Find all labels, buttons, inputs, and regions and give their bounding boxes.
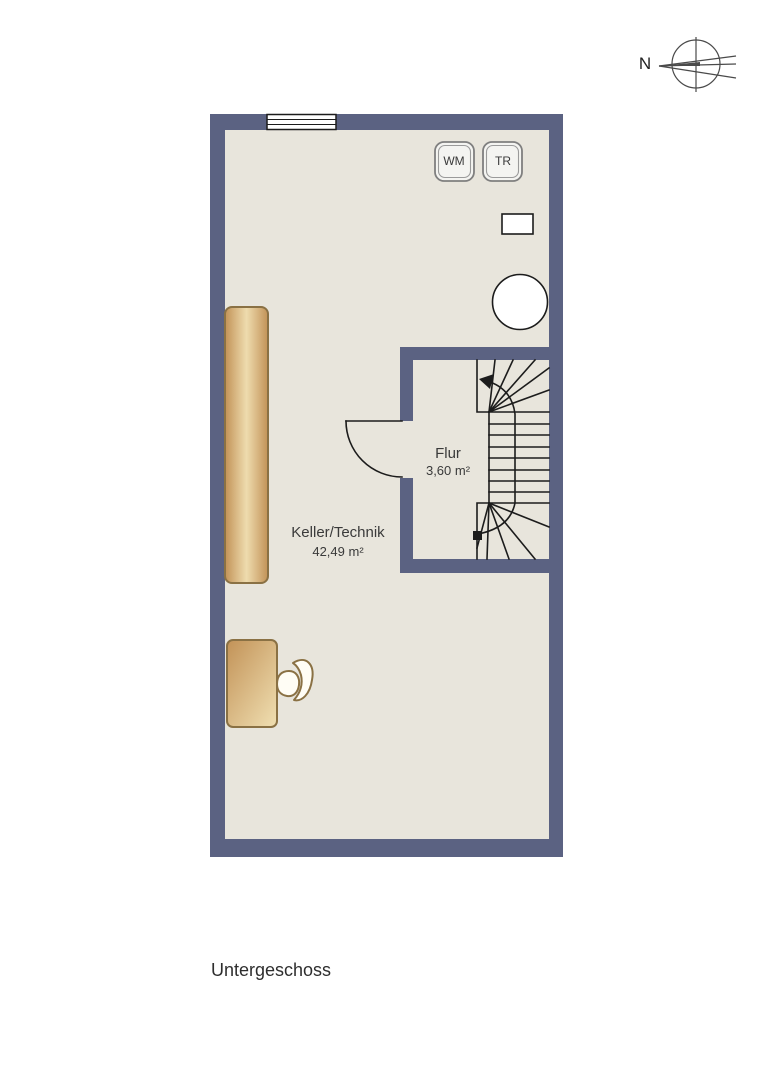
desk bbox=[227, 640, 277, 727]
stairs-walk-start-dot bbox=[473, 531, 482, 540]
small-box-symbol bbox=[502, 214, 533, 234]
compass-north-label: N bbox=[639, 54, 651, 74]
room-label-flur-name: Flur bbox=[435, 445, 461, 462]
boiler-tank-icon bbox=[493, 275, 548, 330]
shelf-workbench bbox=[225, 307, 268, 583]
flur-wall-top bbox=[400, 347, 549, 360]
window bbox=[267, 115, 336, 130]
floor-plan-page: N WM TR Flur 3,60 m² Keller/Technik 42,4… bbox=[0, 0, 764, 1080]
floor-title: Untergeschoss bbox=[211, 960, 331, 981]
outer-wall-left bbox=[210, 114, 225, 857]
outer-wall-top bbox=[210, 114, 563, 130]
flur-wall-left-upper bbox=[400, 347, 413, 421]
outer-wall-right bbox=[549, 114, 563, 857]
flur-wall-bottom bbox=[400, 559, 549, 573]
washing-machine-label: WM bbox=[443, 154, 464, 168]
outer-wall-bottom bbox=[210, 839, 563, 857]
flur-wall-left-lower bbox=[400, 478, 413, 573]
chair-seat bbox=[277, 671, 299, 696]
room-label-flur-area: 3,60 m² bbox=[426, 463, 470, 478]
dryer-label: TR bbox=[495, 154, 511, 168]
compass-icon bbox=[659, 37, 736, 92]
keller-floor bbox=[225, 130, 549, 839]
north-arrow-lower-blade bbox=[659, 66, 736, 78]
room-label-keller-name: Keller/Technik bbox=[291, 524, 384, 541]
north-arrow-icon bbox=[659, 62, 700, 66]
room-label-keller-area: 42,49 m² bbox=[312, 544, 363, 559]
